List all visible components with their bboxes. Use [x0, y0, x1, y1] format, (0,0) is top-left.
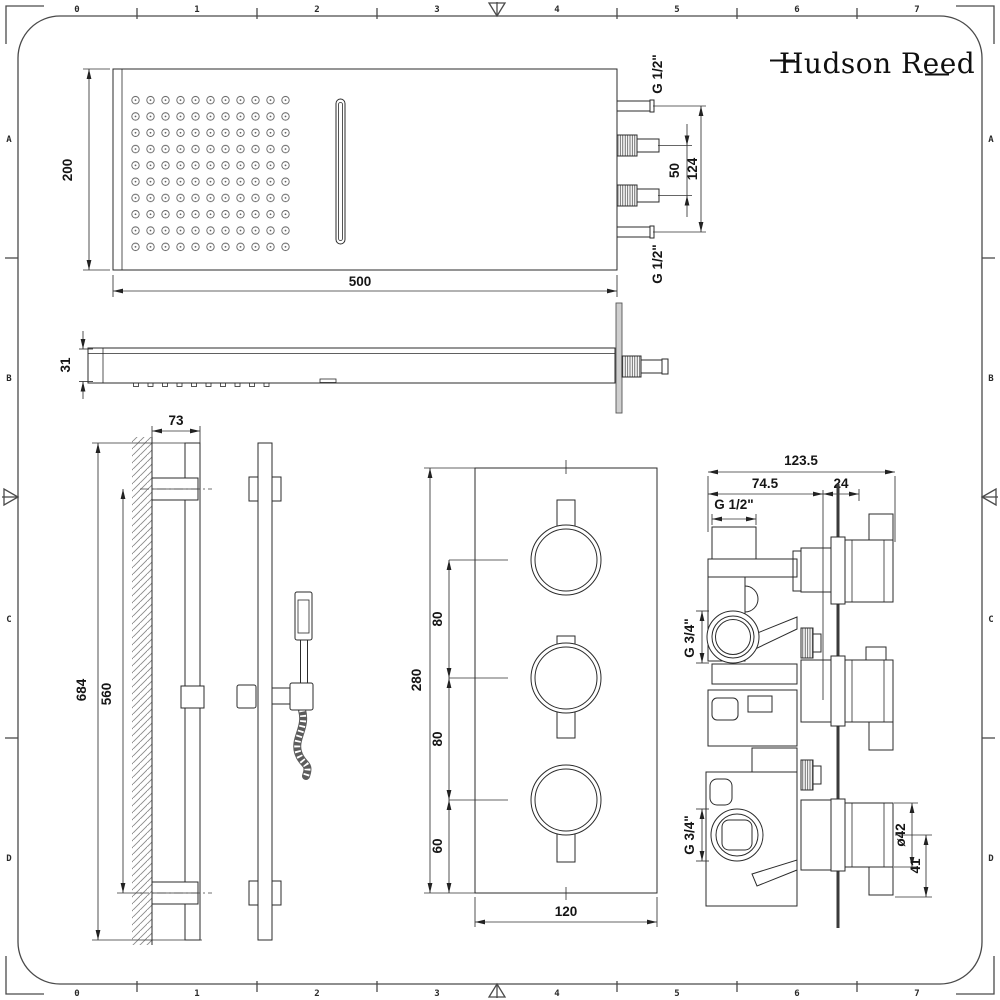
- dim-knob-depth-label: 41: [908, 858, 923, 874]
- corner-mark-bottom-left: [6, 956, 44, 994]
- slide-rail-side-view: 73 684 560: [74, 413, 212, 945]
- dim-gap-mid-label: 80: [430, 731, 445, 746]
- dim-head-width-label: 500: [349, 274, 372, 289]
- hand-shower: [295, 592, 312, 686]
- valve-knob-top: [831, 514, 893, 604]
- ruler-bottom-0: 0: [74, 989, 79, 999]
- port-lower-thread-label: G 3/4": [682, 815, 697, 854]
- valve-side-view: 123.5 74.5 24 G 1/2" G 3/4": [682, 453, 932, 928]
- ruler-top-0: 0: [74, 5, 79, 15]
- valve-cartridge-top: [801, 548, 831, 592]
- dim-valve-body-label: 74.5: [752, 476, 779, 491]
- ruler-top-1: 1: [194, 5, 199, 15]
- valve-body-upper: [707, 548, 831, 663]
- ruler-right-D: D: [988, 854, 994, 864]
- corner-mark-top-left: [6, 6, 44, 44]
- ruler-bottom-2: 2: [314, 989, 319, 999]
- ruler-left-B: B: [6, 374, 12, 384]
- ruler-bottom-5: 5: [674, 989, 679, 999]
- dim-valve-plate-label: 24: [833, 476, 849, 491]
- nozzle-dot-grid: [128, 92, 293, 255]
- valve-dial-middle: [531, 636, 601, 738]
- rail-bar-front: [258, 443, 272, 940]
- technical-drawing-sheet: 0 1 2 3 4 5 6 7 0 1 2 3 4 5 6 7: [0, 0, 1000, 1000]
- valve-inlet-stub: [712, 527, 756, 559]
- conn-bottom-thread-label: G 1/2": [650, 244, 665, 283]
- valve-cartridge-bottom: [801, 800, 831, 870]
- ruler-bottom-7: 7: [914, 989, 919, 999]
- shower-head-front-view: 200 500: [60, 69, 617, 297]
- ruler-left: A B C D: [2, 135, 18, 864]
- dim-head-height-label: 200: [60, 159, 75, 182]
- corner-mark-top-right: [956, 6, 994, 44]
- valve-knob-bottom: [831, 799, 893, 895]
- ruler-top-2: 2: [314, 5, 319, 15]
- dim-gap-bottom-label: 60: [430, 838, 445, 853]
- ruler-bottom-3: 3: [434, 989, 439, 999]
- dim-plate-width-label: 120: [555, 904, 578, 919]
- rail-slider-side: [181, 686, 204, 708]
- dim-conn-pitch-label: 50: [667, 163, 682, 178]
- valve-dial-top: [531, 500, 601, 595]
- threaded-inlet-upper: [617, 135, 637, 156]
- valve-front-view: 280 80 80 60 120: [409, 460, 657, 927]
- dim-rail-offset-label: 73: [168, 413, 184, 428]
- ruler-right-B: B: [988, 374, 994, 384]
- shower-head-connections: G 1/2" G 1/2" 50 124: [617, 54, 706, 283]
- ruler-top-3: 3: [434, 5, 439, 15]
- dim-valve-overall-label: 123.5: [784, 453, 818, 468]
- port-upper-thread-label: G 3/4": [682, 618, 697, 657]
- valve-knob-middle: [831, 647, 893, 750]
- ruler-bottom-6: 6: [794, 989, 799, 999]
- dim-rail-overall-label: 684: [74, 678, 89, 701]
- ruler-right-C: C: [988, 615, 993, 625]
- ruler-right-A: A: [988, 135, 994, 145]
- profile-slot-mark: [320, 379, 336, 383]
- shower-hose: [297, 710, 307, 776]
- valve-cartridge-middle: [801, 660, 831, 722]
- valve-dial-bottom: [531, 765, 601, 862]
- rail-slider-front: [237, 683, 313, 710]
- corner-mark-bottom-right: [956, 956, 994, 994]
- valve-body-middle: [708, 660, 831, 790]
- ruler-left-D: D: [6, 854, 12, 864]
- ruler-top-4: 4: [554, 5, 560, 15]
- waterfall-slot: [336, 99, 345, 244]
- dim-head-thickness-label: 31: [58, 357, 73, 373]
- ruler-bottom-1: 1: [194, 989, 199, 999]
- threaded-inlet-lower: [617, 185, 637, 206]
- valve-inlet-thread-label: G 1/2": [714, 497, 753, 512]
- ruler-left-C: C: [6, 615, 11, 625]
- ruler-top-5: 5: [674, 5, 679, 15]
- slide-rail-front-view: [237, 443, 313, 940]
- dim-plate-height-label: 280: [409, 669, 424, 692]
- dim-conn-span-label: 124: [685, 157, 700, 180]
- drawing-canvas: 0 1 2 3 4 5 6 7 0 1 2 3 4 5 6 7: [0, 0, 1000, 1000]
- dim-rail-span-label: 560: [99, 683, 114, 706]
- wall-plate: [616, 303, 622, 413]
- shower-head-side-view: 31: [58, 303, 668, 413]
- conn-top-thread-label: G 1/2": [650, 54, 665, 93]
- ruler-bottom-4: 4: [554, 989, 560, 999]
- brand-logo: Hudson Reed: [770, 47, 975, 80]
- profile-nozzles: [134, 383, 270, 387]
- dim-gap-top-label: 80: [430, 611, 445, 626]
- ruler-right: A B C D: [982, 135, 998, 864]
- ruler-top-7: 7: [914, 5, 919, 15]
- ruler-left-A: A: [6, 135, 12, 145]
- ruler-top-6: 6: [794, 5, 799, 15]
- wall-hatch: [132, 437, 152, 945]
